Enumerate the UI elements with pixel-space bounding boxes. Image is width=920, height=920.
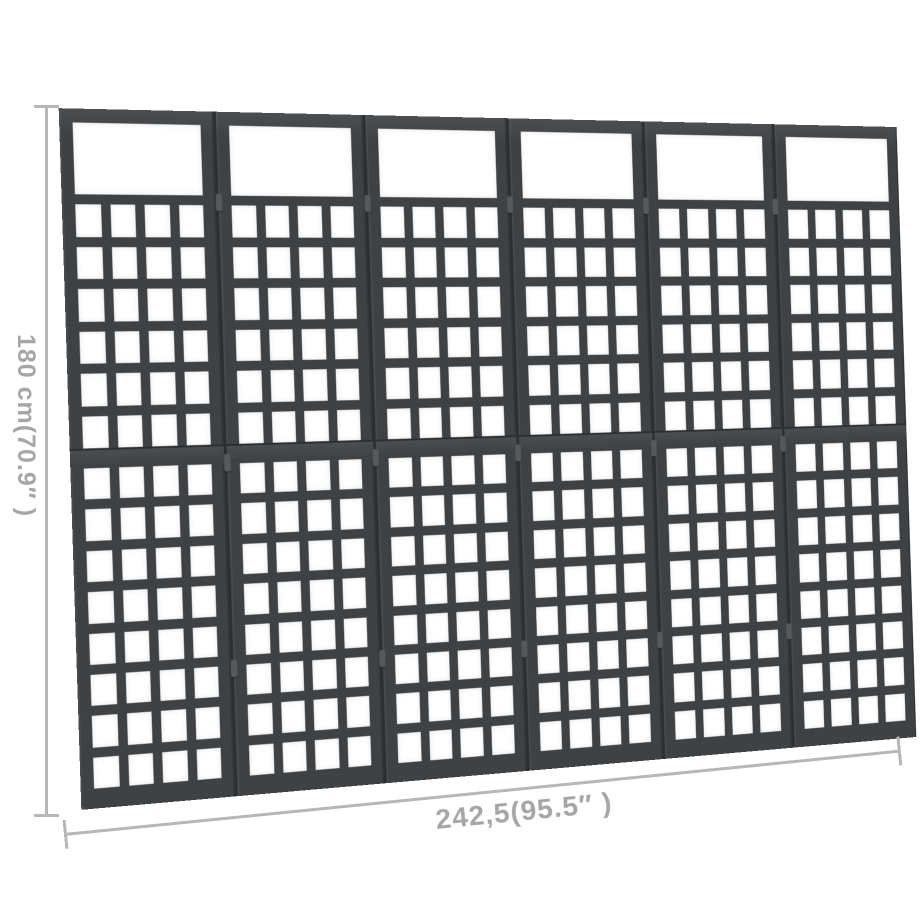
trellis-hole — [597, 640, 619, 670]
trellis-hole — [150, 372, 176, 405]
trellis-hole — [79, 331, 105, 364]
trellis-hole — [445, 247, 469, 278]
width-dimension-label: 242,5(95.5″ ) — [318, 775, 729, 848]
trellis-hole — [281, 701, 306, 733]
trellis-hole — [749, 361, 770, 390]
trellis-hole — [240, 462, 265, 493]
trellis-hole — [484, 493, 507, 523]
trellis-hole — [662, 324, 684, 354]
trellis-hole — [330, 206, 354, 237]
trellis-hole — [265, 206, 290, 238]
trellis-hole — [697, 522, 719, 551]
trellis-hole — [871, 247, 891, 275]
trellis-hole — [732, 705, 753, 735]
panel-hinge — [780, 436, 786, 452]
divider-panel-2 — [213, 112, 384, 797]
trellis-hole — [269, 329, 294, 361]
trellis-hole — [478, 326, 501, 357]
trellis-hole — [78, 289, 104, 322]
trellis-hole — [844, 247, 865, 276]
trellis-hole — [614, 247, 636, 277]
trellis-hole — [539, 720, 562, 751]
trellis-hole — [90, 673, 116, 706]
panel-hinge — [651, 440, 657, 457]
divider-panel-5 — [642, 121, 792, 759]
trellis-hole — [797, 480, 818, 509]
trellis-hole — [523, 208, 546, 238]
trellis-hole — [534, 567, 557, 597]
trellis-hole — [558, 364, 581, 394]
trellis-hole — [721, 361, 742, 391]
trellis-hole — [675, 710, 697, 740]
trellis-hole — [830, 661, 851, 690]
trellis-hole — [429, 729, 453, 760]
trellis-hole — [249, 743, 274, 775]
trellis-hole — [123, 589, 149, 621]
trellis-hole — [481, 405, 504, 436]
trellis-hole — [668, 523, 690, 552]
trellis-hole — [450, 406, 473, 437]
trellis-hole — [718, 285, 739, 314]
trellis-hole — [422, 495, 446, 526]
trellis-hole — [393, 575, 417, 606]
trellis-hole — [147, 288, 173, 320]
trellis-hole — [881, 549, 901, 577]
trellis-hole — [191, 586, 216, 618]
trellis-hole — [458, 649, 481, 680]
trellis-hole — [300, 288, 325, 319]
trellis-hole — [815, 210, 836, 239]
trellis-hole — [233, 247, 258, 279]
trellis-hole — [593, 526, 615, 556]
trellis-hole — [127, 712, 153, 745]
trellis-hole — [485, 531, 508, 561]
trellis-hole — [444, 207, 468, 238]
trellis-hole — [491, 724, 514, 755]
height-dimension-cap-top — [34, 105, 59, 108]
trellis-hole — [151, 414, 177, 447]
trellis-hole — [299, 247, 324, 278]
panel-hinge — [515, 444, 521, 461]
trellis-hole — [794, 397, 815, 426]
panel-hinge — [657, 631, 663, 648]
trellis-hole — [454, 533, 477, 564]
trellis-hole — [856, 623, 876, 652]
trellis-hole — [92, 714, 118, 747]
trellis-hole — [412, 207, 436, 238]
trellis-hole — [569, 718, 592, 749]
trellis-hole — [310, 579, 335, 610]
panel-hinge — [507, 197, 513, 214]
trellis-hole — [826, 552, 847, 581]
trellis-hole — [850, 442, 871, 470]
trellis-hole — [554, 247, 577, 277]
trellis-hole — [382, 247, 406, 278]
trellis-hole — [789, 247, 810, 276]
trellis-hole — [599, 716, 621, 747]
trellis-hole — [89, 632, 115, 665]
trellis-hole — [272, 411, 297, 443]
trellis-hole — [190, 545, 216, 577]
trellis-grid-lower — [531, 450, 651, 752]
trellis-hole — [823, 443, 844, 471]
trellis-hole — [745, 247, 766, 276]
trellis-grid-lower — [795, 441, 905, 729]
trellis-hole — [311, 619, 336, 651]
trellis-hole — [425, 612, 449, 643]
trellis-hole — [396, 692, 420, 723]
trellis-hole — [616, 324, 638, 354]
trellis-grid-upper — [523, 208, 641, 435]
trellis-hole — [620, 450, 642, 479]
trellis-hole — [661, 286, 683, 316]
panel-hinge — [786, 623, 792, 639]
trellis-hole — [394, 614, 418, 645]
trellis-hole — [567, 642, 590, 672]
trellis-hole — [93, 755, 119, 788]
trellis-hole — [84, 468, 110, 500]
trellis-hole — [335, 368, 359, 400]
trellis-hole — [238, 412, 263, 444]
trellis-hole — [416, 327, 440, 358]
trellis-hole — [488, 608, 511, 639]
trellis-hole — [663, 362, 685, 392]
trellis-hole — [449, 366, 472, 397]
trellis-hole — [664, 401, 686, 431]
trellis-hole — [847, 359, 868, 388]
trellis-hole — [727, 557, 748, 586]
trellis-hole — [278, 621, 303, 653]
trellis-hole — [819, 322, 840, 351]
trellis-hole — [563, 528, 586, 558]
trellis-hole — [692, 362, 714, 392]
trellis-hole — [347, 735, 371, 767]
trellis-hole — [302, 328, 327, 360]
trellis-hole — [86, 550, 112, 582]
trellis-grid-upper — [232, 205, 361, 443]
trellis-hole — [845, 284, 866, 313]
trellis-hole — [243, 543, 268, 575]
trellis-hole — [82, 416, 108, 449]
product-dimension-figure: 180 cm(70.9″ ) 242,5(95.5″ ) — [0, 0, 920, 920]
trellis-hole — [724, 483, 745, 512]
trellis-hole — [667, 485, 689, 514]
trellis-hole — [480, 366, 503, 397]
trellis-hole — [420, 456, 444, 486]
trellis-grid-upper — [75, 204, 211, 448]
trellis-hole — [427, 651, 451, 682]
trellis-hole — [561, 452, 584, 482]
trellis-hole — [717, 247, 738, 276]
trellis-hole — [120, 507, 146, 539]
trellis-hole — [730, 668, 751, 698]
trellis-hole — [119, 467, 145, 499]
trellis-hole — [802, 663, 823, 692]
trellis-hole — [525, 286, 548, 316]
trellis-hole — [744, 209, 765, 238]
trellis-hole — [114, 331, 140, 364]
trellis-hole — [245, 623, 270, 655]
trellis-hole — [759, 666, 780, 695]
trellis-hole — [298, 206, 323, 237]
trellis-hole — [564, 566, 587, 596]
trellis-hole — [315, 738, 340, 770]
trellis-hole — [307, 500, 332, 531]
trellis-hole — [447, 327, 471, 358]
trellis-hole — [872, 284, 892, 313]
trellis-hole — [280, 661, 305, 693]
trellis-hole — [831, 697, 852, 726]
trellis-grid-lower — [240, 459, 372, 775]
panel-top-opening — [785, 137, 888, 202]
trellis-hole — [594, 564, 616, 594]
divider-panel-3 — [363, 115, 527, 783]
trellis-hole — [153, 465, 179, 497]
trellis-hole — [568, 680, 591, 711]
panel-top-opening — [656, 134, 764, 200]
trellis-hole — [390, 497, 414, 528]
trellis-hole — [849, 396, 870, 425]
trellis-hole — [804, 700, 825, 729]
panel-hinge — [521, 640, 527, 657]
trellis-hole — [460, 727, 483, 758]
trellis-hole — [624, 563, 646, 593]
trellis-hole — [312, 659, 337, 691]
trellis-hole — [756, 593, 777, 622]
trellis-hole — [670, 560, 692, 590]
trellis-hole — [314, 698, 339, 730]
trellis-hole — [557, 325, 580, 355]
trellis-hole — [854, 550, 875, 579]
trellis-hole — [124, 630, 150, 663]
trellis-hole — [268, 288, 293, 320]
trellis-hole — [181, 288, 207, 320]
trellis-hole — [627, 676, 649, 706]
trellis-hole — [583, 208, 605, 238]
trellis-hole — [128, 753, 154, 786]
trellis-hole — [843, 210, 864, 239]
trellis-hole — [800, 590, 821, 619]
trellis-hole — [878, 477, 898, 505]
trellis-hole — [391, 536, 415, 567]
width-dimension-cap-right — [896, 737, 902, 766]
trellis-hole — [274, 501, 299, 532]
trellis-hole — [754, 519, 775, 548]
trellis-hole — [658, 209, 680, 239]
trellis-hole — [874, 358, 894, 387]
trellis-hole — [691, 324, 713, 354]
trellis-hole — [270, 370, 295, 402]
trellis-hole — [415, 287, 439, 318]
height-dimension-cap-bottom — [34, 814, 59, 817]
trellis-hole — [671, 598, 693, 628]
trellis-hole — [824, 479, 845, 507]
panel-hinge — [224, 454, 231, 472]
trellis-hole — [587, 325, 609, 355]
trellis-hole — [788, 210, 809, 239]
trellis-hole — [617, 363, 639, 393]
trellis-hole — [154, 506, 180, 538]
panel-top-opening — [520, 132, 633, 200]
trellis-hole — [157, 587, 183, 619]
trellis-hole — [818, 285, 839, 314]
trellis-hole — [179, 205, 205, 237]
panel-hinge — [365, 195, 372, 212]
trellis-hole — [829, 625, 850, 654]
trellis-hole — [757, 629, 778, 658]
trellis-hole — [629, 713, 651, 743]
trellis-hole — [477, 287, 500, 318]
trellis-hole — [722, 399, 743, 429]
trellis-grid-upper — [658, 209, 771, 431]
trellis-hole — [589, 403, 611, 433]
trellis-hole — [795, 444, 816, 472]
trellis-hole — [752, 445, 773, 474]
trellis-hole — [750, 399, 771, 429]
trellis-hole — [110, 204, 136, 236]
trellis-hole — [533, 529, 556, 559]
trellis-hole — [729, 631, 750, 661]
trellis-hole — [160, 669, 186, 702]
trellis-hole — [619, 402, 641, 432]
trellis-hole — [846, 322, 867, 351]
trellis-hole — [244, 583, 269, 615]
trellis-hole — [873, 321, 893, 350]
trellis-hole — [746, 285, 767, 314]
trellis-hole — [537, 644, 560, 675]
trellis-hole — [237, 370, 262, 402]
trellis-hole — [701, 633, 723, 663]
panel-hinge — [230, 659, 237, 677]
trellis-hole — [459, 688, 482, 719]
trellis-hole — [726, 520, 747, 549]
panel-hinge — [215, 194, 222, 212]
trellis-hole — [817, 247, 838, 276]
trellis-hole — [695, 447, 717, 476]
trellis-hole — [615, 286, 637, 316]
trellis-hole — [247, 663, 272, 695]
trellis-hole — [625, 600, 647, 630]
trellis-grid-upper — [381, 207, 505, 440]
trellis-hole — [702, 670, 724, 700]
trellis-hole — [828, 588, 849, 617]
trellis-hole — [342, 578, 366, 609]
trellis-grid-upper — [788, 210, 896, 427]
trellis-hole — [598, 678, 620, 708]
trellis-hole — [696, 484, 718, 513]
trellis-hole — [149, 330, 175, 362]
trellis-hole — [798, 517, 819, 546]
trellis-hole — [273, 461, 298, 492]
trellis-hole — [753, 482, 774, 511]
divider-panel-6 — [772, 124, 916, 748]
trellis-hole — [446, 287, 470, 318]
trellis-hole — [395, 653, 419, 684]
trellis-hole — [877, 441, 897, 469]
trellis-hole — [700, 596, 722, 626]
trellis-hole — [666, 448, 688, 477]
trellis-hole — [703, 707, 725, 737]
trellis-hole — [344, 617, 368, 648]
trellis-hole — [755, 556, 776, 585]
width-dimension-cap-left — [63, 820, 69, 849]
trellis-hole — [483, 454, 506, 484]
trellis-hole — [855, 587, 875, 616]
trellis-hole — [596, 602, 618, 632]
trellis-hole — [588, 364, 610, 394]
trellis-hole — [801, 626, 822, 655]
trellis-hole — [277, 581, 302, 613]
trellis-hole — [585, 286, 607, 316]
trellis-hole — [195, 707, 220, 740]
trellis-hole — [341, 538, 365, 569]
trellis-hole — [419, 407, 443, 438]
trellis-hole — [340, 499, 364, 530]
trellis-hole — [527, 326, 550, 356]
trellis-hole — [455, 572, 478, 603]
trellis-hole — [532, 491, 555, 521]
trellis-hole — [385, 327, 409, 358]
trellis-hole — [882, 585, 902, 614]
trellis-hole — [723, 446, 744, 475]
trellis-hole — [793, 360, 814, 389]
trellis-hole — [584, 247, 606, 277]
trellis-hole — [332, 247, 356, 278]
trellis-hole — [346, 696, 370, 728]
trellis-hole — [719, 323, 740, 352]
trellis-hole — [531, 453, 554, 483]
trellis-hole — [673, 672, 695, 702]
trellis-hole — [248, 703, 273, 735]
trellis-hole — [559, 403, 582, 434]
trellis-hole — [490, 686, 513, 717]
trellis-hole — [486, 570, 509, 601]
panel-hinge — [379, 649, 386, 667]
trellis-hole — [156, 547, 182, 579]
trellis-hole — [266, 247, 291, 278]
panel-hinge — [773, 199, 779, 215]
trellis-hole — [852, 514, 873, 542]
trellis-hole — [180, 247, 206, 279]
trellis-hole — [111, 247, 137, 279]
trellis-hole — [414, 247, 438, 278]
trellis-grid-lower — [389, 454, 515, 763]
trellis-hole — [145, 205, 171, 237]
height-dimension-label: 180 cm(70.9″ ) — [11, 334, 40, 517]
height-dimension-line — [45, 105, 48, 817]
trellis-hole — [423, 534, 447, 565]
trellis-hole — [790, 285, 811, 314]
trellis-hole — [417, 367, 441, 398]
trellis-hole — [851, 478, 872, 506]
room-divider-product — [59, 108, 917, 810]
trellis-hole — [183, 330, 209, 362]
trellis-hole — [424, 573, 448, 604]
trellis-hole — [621, 487, 643, 517]
trellis-hole — [184, 371, 210, 403]
trellis-hole — [524, 247, 547, 277]
trellis-hole — [188, 505, 214, 537]
trellis-hole — [870, 210, 890, 238]
trellis-hole — [196, 747, 221, 780]
trellis-hole — [306, 460, 331, 491]
trellis-hole — [883, 621, 903, 650]
trellis-hole — [538, 682, 561, 713]
trellis-hole — [476, 247, 499, 277]
trellis-hole — [591, 451, 613, 481]
divider-panel-1 — [59, 108, 236, 810]
trellis-hole — [453, 494, 476, 524]
